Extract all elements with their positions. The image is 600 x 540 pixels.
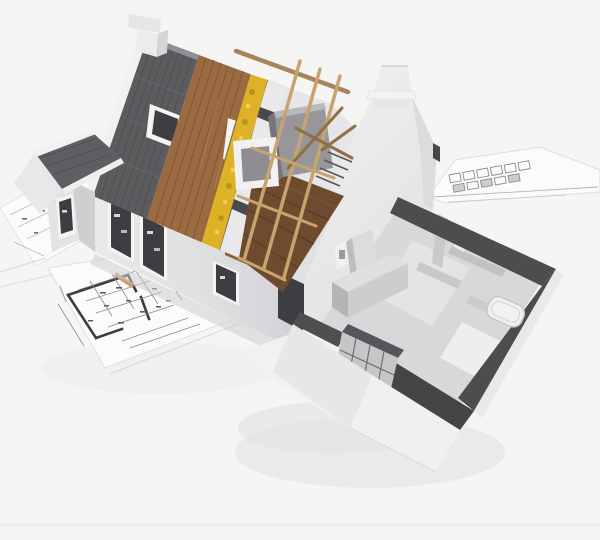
wing-window bbox=[56, 194, 76, 239]
architectural-render bbox=[0, 0, 600, 540]
bottom-border-line bbox=[0, 524, 600, 526]
render-canvas bbox=[0, 0, 600, 540]
bottom-margin bbox=[0, 526, 600, 540]
